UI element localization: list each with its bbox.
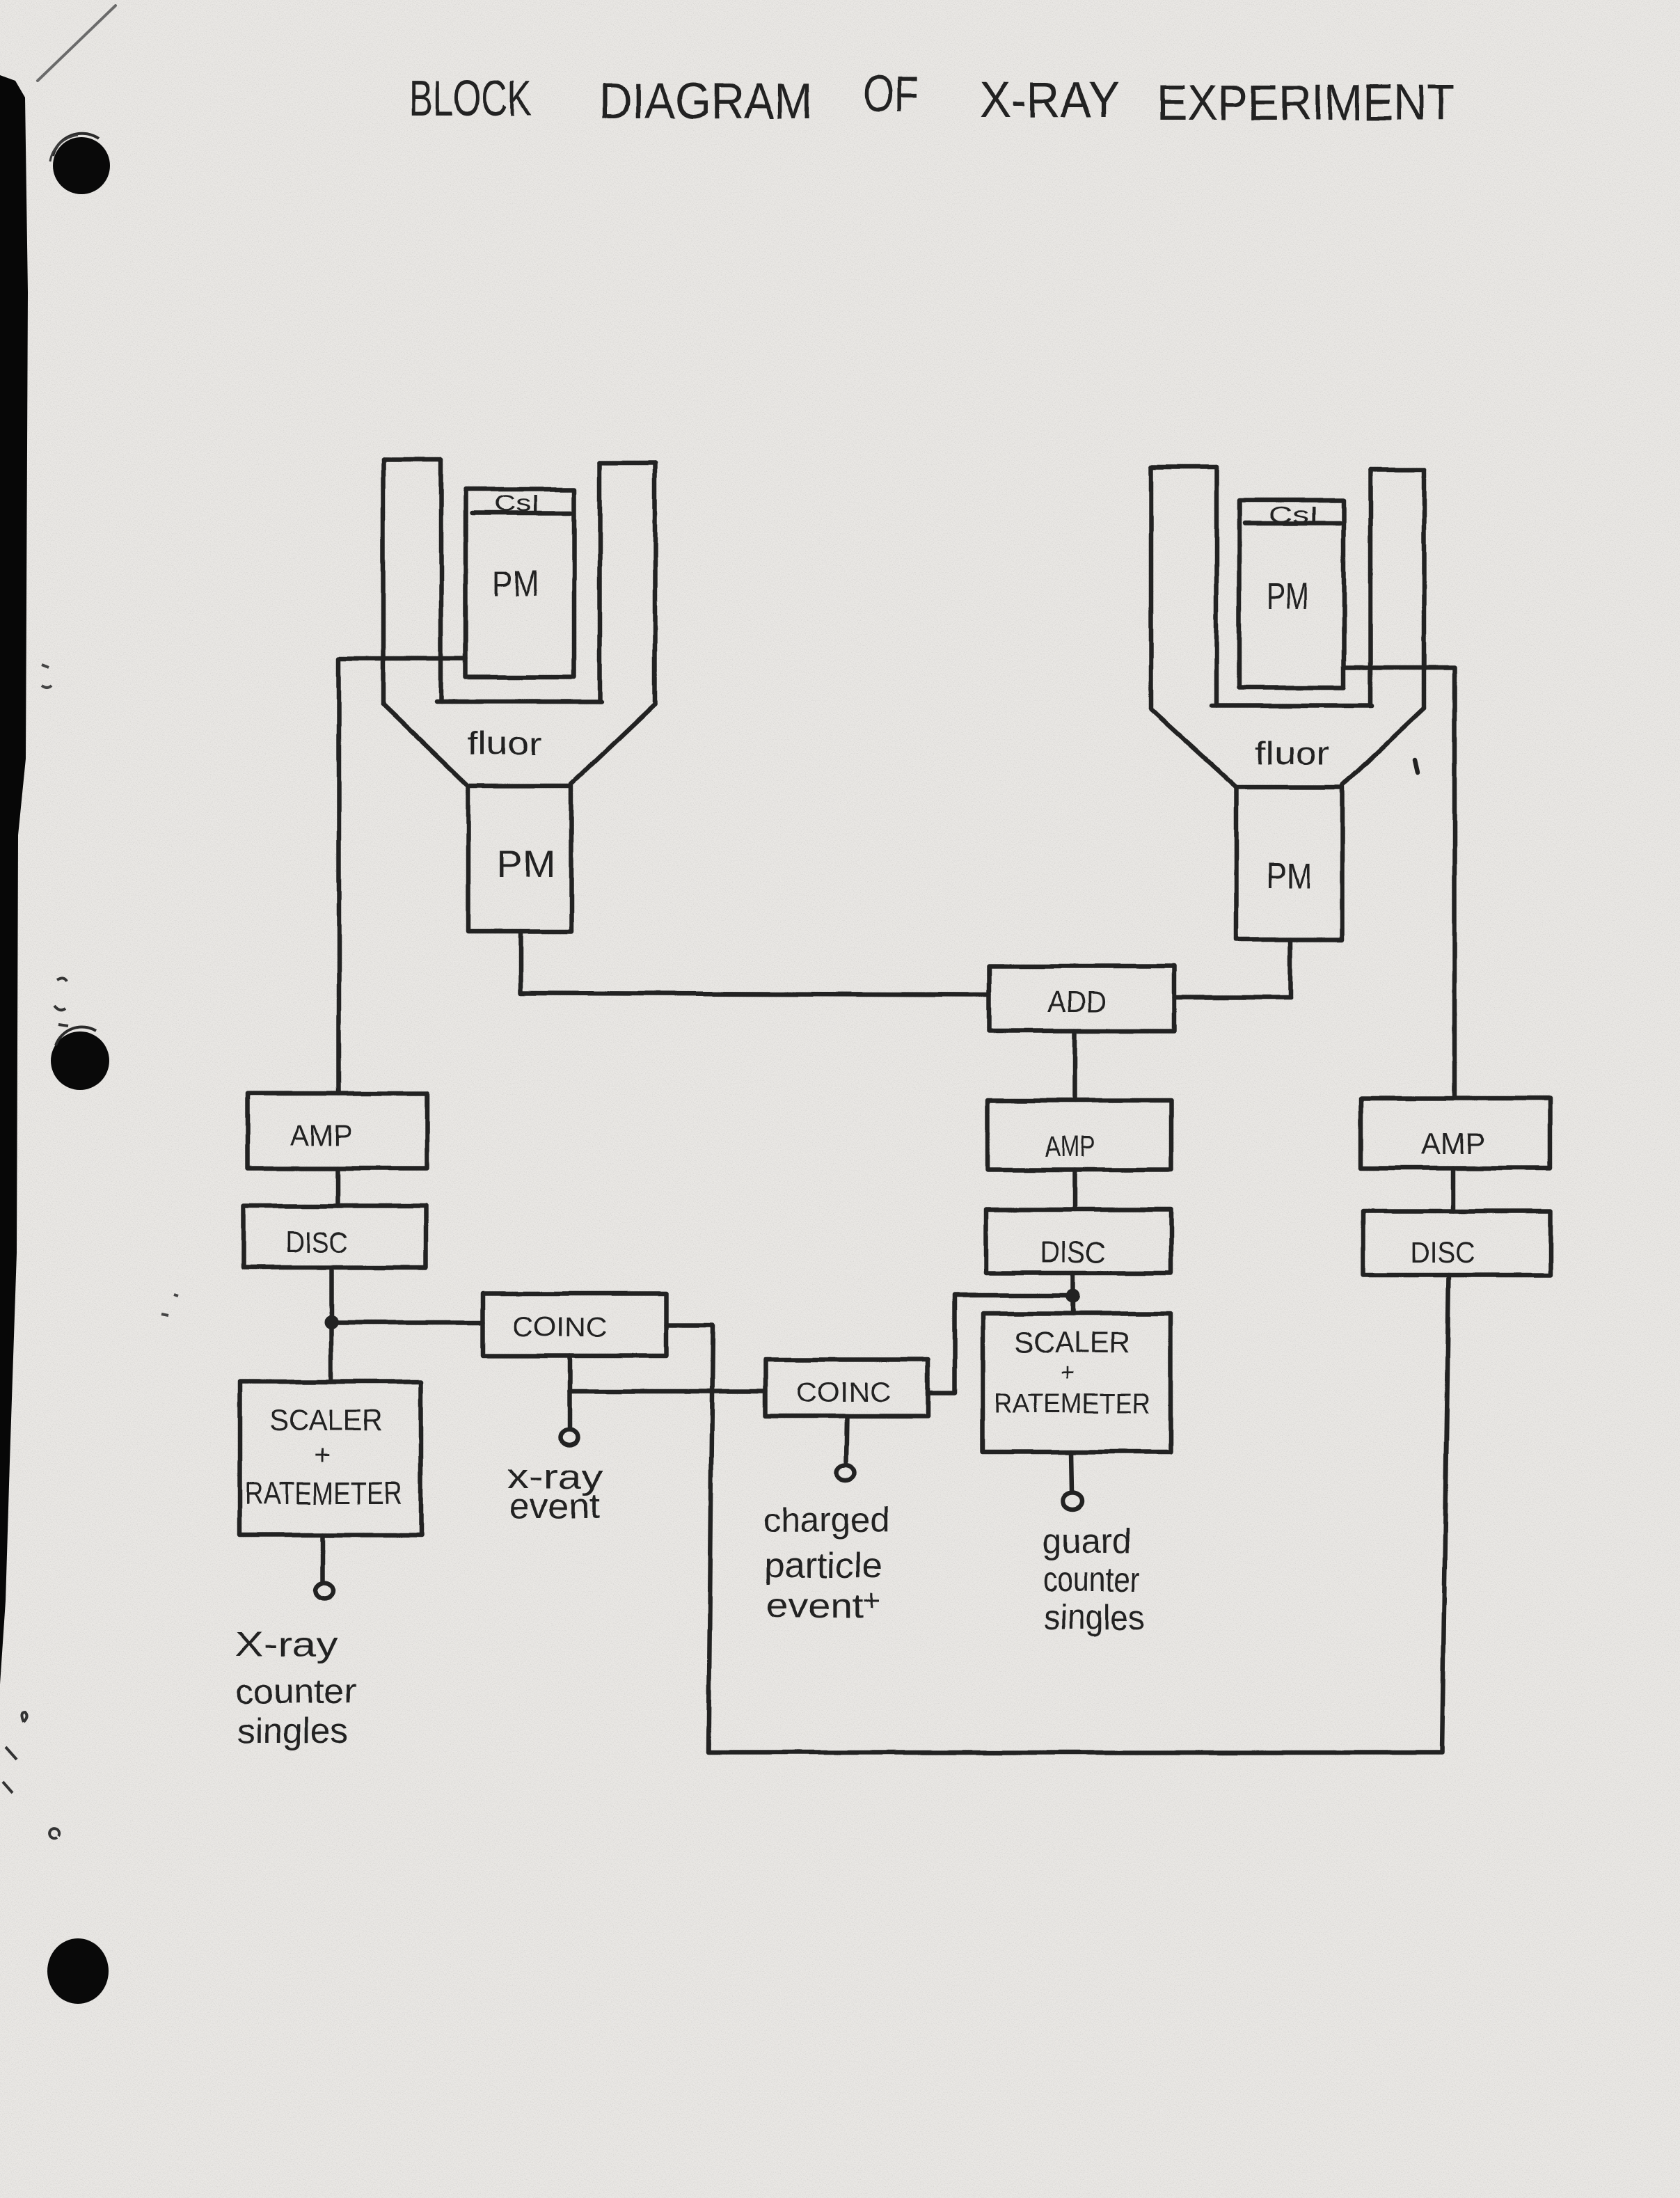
svg-text:+: +: [863, 1583, 881, 1618]
svg-text:OF: OF: [863, 67, 919, 122]
svg-text:CsI: CsI: [1269, 503, 1320, 528]
svg-text:event: event: [766, 1586, 864, 1625]
svg-text:RATEMETER: RATEMETER: [245, 1475, 402, 1511]
svg-text:fluor: fluor: [467, 725, 542, 761]
svg-text:PM: PM: [1267, 855, 1311, 897]
svg-text:DISC: DISC: [285, 1226, 349, 1259]
svg-text:X-ray: X-ray: [235, 1625, 338, 1664]
svg-text:EXPERIMENT: EXPERIMENT: [1157, 75, 1455, 131]
svg-text:DISC: DISC: [1040, 1236, 1107, 1270]
svg-text:AMP: AMP: [1421, 1128, 1485, 1161]
svg-text:charged: charged: [763, 1501, 890, 1540]
svg-text:event: event: [509, 1487, 600, 1526]
svg-text:particle: particle: [764, 1546, 882, 1585]
svg-text:PM: PM: [493, 563, 539, 605]
svg-text:singles: singles: [1044, 1598, 1145, 1637]
svg-text:AMP: AMP: [290, 1119, 354, 1153]
svg-text:fluor: fluor: [1255, 735, 1329, 771]
svg-text:DISC: DISC: [1411, 1236, 1475, 1270]
svg-text:CsI: CsI: [493, 491, 541, 516]
svg-text:+: +: [1060, 1358, 1075, 1386]
svg-text:COINC: COINC: [512, 1312, 608, 1343]
svg-text:COINC: COINC: [795, 1377, 891, 1408]
svg-text:ADD: ADD: [1048, 986, 1107, 1019]
svg-text:AMP: AMP: [1045, 1130, 1095, 1164]
svg-text:singles: singles: [237, 1711, 348, 1750]
svg-text:SCALER: SCALER: [269, 1404, 382, 1437]
svg-text:DIAGRAM: DIAGRAM: [599, 74, 813, 129]
svg-text:PM: PM: [1267, 576, 1308, 617]
svg-text:SCALER: SCALER: [1015, 1326, 1130, 1359]
svg-text:RATEMETER: RATEMETER: [994, 1389, 1151, 1419]
svg-text:+: +: [314, 1440, 330, 1471]
svg-text:X-RAY: X-RAY: [980, 72, 1119, 128]
svg-text:counter: counter: [1043, 1560, 1140, 1599]
svg-text:BLOCK: BLOCK: [409, 71, 532, 127]
svg-text:counter: counter: [235, 1672, 356, 1711]
svg-text:PM: PM: [497, 844, 556, 885]
svg-text:guard: guard: [1043, 1521, 1131, 1560]
